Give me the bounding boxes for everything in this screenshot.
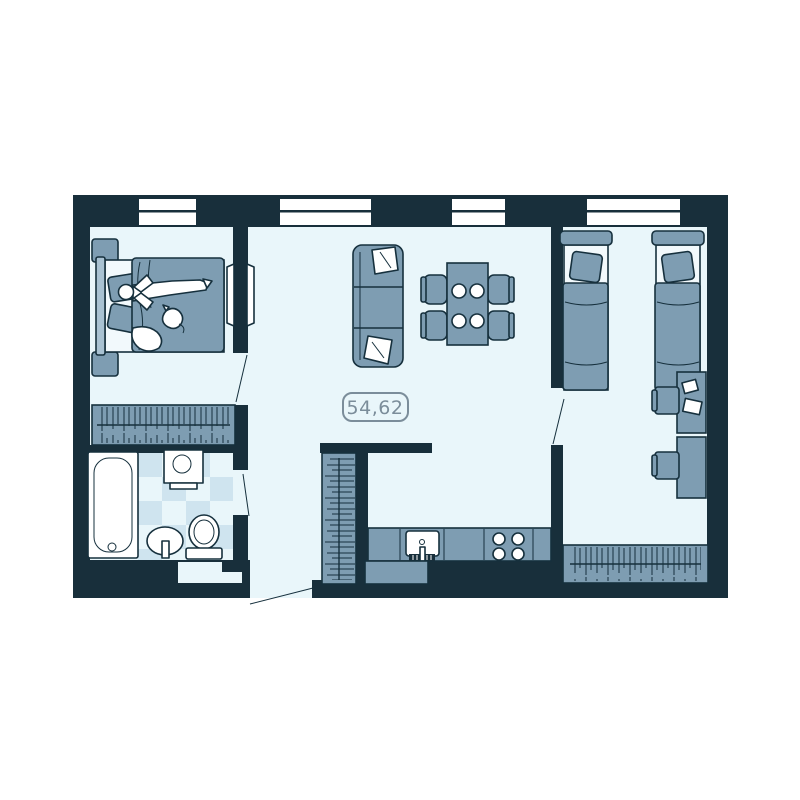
wardrobe-hangers-icon	[92, 405, 235, 445]
window-icon	[139, 199, 196, 225]
kitchen-sink-icon	[406, 531, 439, 561]
dining-set	[421, 263, 514, 345]
pillow-icon	[364, 336, 392, 364]
window-icon	[452, 199, 505, 225]
nightstand-icon	[92, 352, 118, 376]
bathtub-icon	[88, 452, 138, 558]
washing-machine-icon	[164, 450, 203, 489]
pillow-icon	[372, 247, 398, 274]
chair-icon	[652, 387, 679, 414]
wardrobe-hangers-icon	[563, 545, 708, 583]
base-cabinet-icon	[365, 561, 428, 584]
area-label: 54,62	[343, 393, 408, 421]
window-icon	[587, 199, 680, 225]
desk-icon	[677, 372, 706, 433]
floor-plan-svg: 54,62	[0, 0, 800, 800]
coat-closet-icon	[322, 453, 356, 584]
chair-icon	[652, 452, 679, 479]
desk-icon	[677, 437, 706, 498]
double-bed-icon	[96, 257, 224, 355]
chair-icon	[421, 275, 447, 304]
bedroom-1	[92, 239, 235, 445]
dining-table-icon	[447, 263, 488, 345]
sofa-icon	[353, 245, 403, 367]
single-bed-icon	[560, 231, 612, 390]
chair-icon	[421, 311, 447, 340]
single-bed-icon	[652, 231, 704, 390]
chair-icon	[488, 275, 514, 304]
toilet-icon	[186, 515, 222, 559]
kitchen-counter	[368, 528, 551, 561]
area-value: 54,62	[347, 397, 404, 419]
window-icon	[280, 199, 371, 225]
chair-icon	[488, 311, 514, 340]
